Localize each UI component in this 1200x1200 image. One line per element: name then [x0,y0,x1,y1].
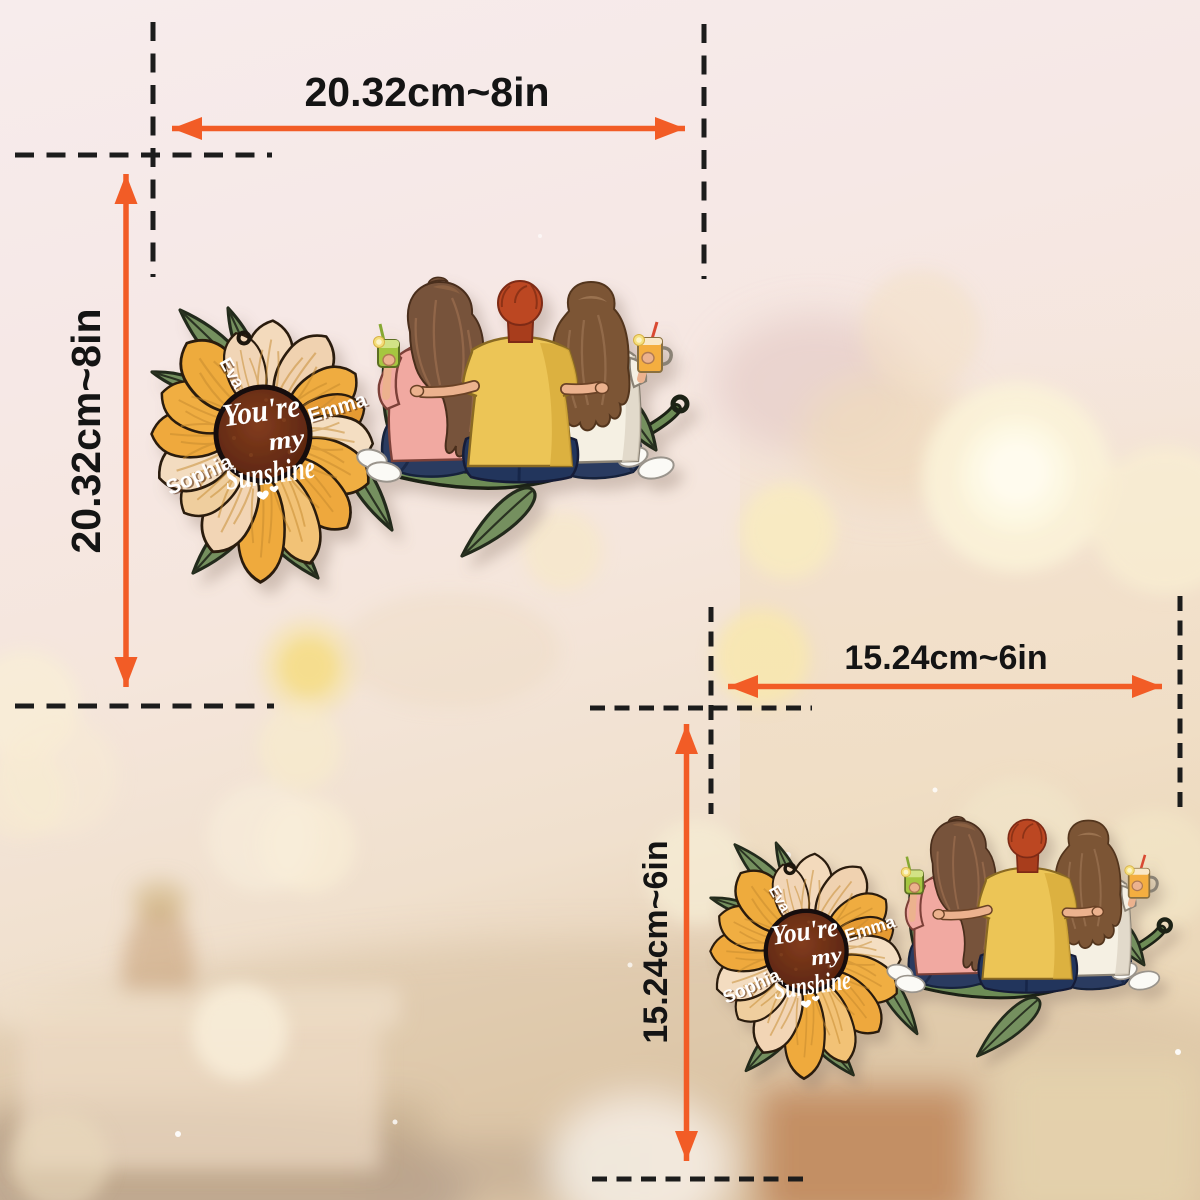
svg-text:15.24cm~6in: 15.24cm~6in [637,840,675,1043]
svg-text:20.32cm~8in: 20.32cm~8in [63,308,109,553]
svg-text:20.32cm~8in: 20.32cm~8in [304,69,549,115]
svg-text:15.24cm~6in: 15.24cm~6in [844,639,1047,677]
